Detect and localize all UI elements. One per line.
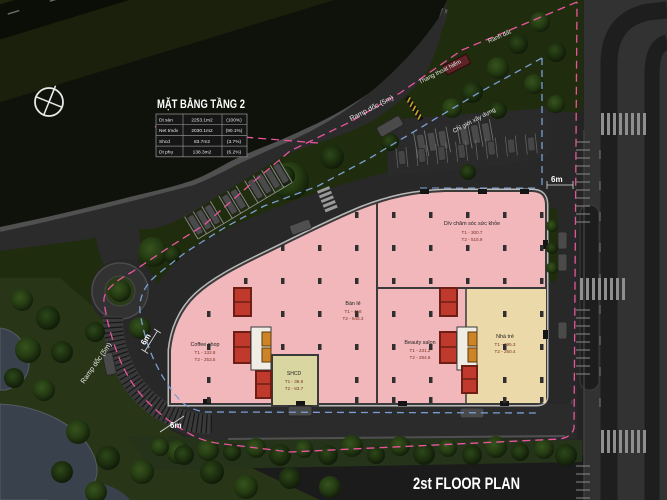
svg-text:2253.1m2: 2253.1m2: [191, 118, 213, 124]
svg-text:6m: 6m: [551, 175, 563, 184]
svg-text:T2 - 284.8: T2 - 284.8: [410, 355, 431, 360]
svg-text:Bán lẻ: Bán lẻ: [345, 301, 360, 307]
svg-text:Net tmdv: Net tmdv: [159, 128, 179, 134]
svg-text:(90.1%): (90.1%): [226, 128, 243, 134]
svg-text:T2 - 645.3: T2 - 645.3: [343, 316, 364, 321]
svg-text:2st FLOOR PLAN: 2st FLOOR PLAN: [413, 475, 520, 493]
svg-text:Nhà trẻ: Nhà trẻ: [496, 334, 514, 340]
svg-text:T1 - 195.3: T1 - 195.3: [495, 342, 516, 347]
svg-text:T2 - 83.7: T2 - 83.7: [285, 386, 304, 391]
svg-text:SHCD: SHCD: [287, 371, 302, 377]
svg-text:T1 - 418: T1 - 418: [344, 309, 362, 314]
svg-text:T1 - 36.9: T1 - 36.9: [285, 379, 304, 384]
svg-text:(100%): (100%): [226, 118, 242, 124]
svg-text:(6.2%): (6.2%): [227, 150, 242, 156]
svg-text:Dt phụ: Dt phụ: [159, 150, 173, 156]
svg-text:Dt sàn: Dt sàn: [159, 118, 173, 124]
svg-text:6m: 6m: [170, 421, 182, 430]
svg-text:T1 - 231.2: T1 - 231.2: [410, 348, 431, 353]
svg-text:Coffee shop: Coffee shop: [191, 342, 220, 348]
svg-text:T2 - 515.9: T2 - 515.9: [462, 237, 483, 242]
svg-text:Shcd: Shcd: [159, 139, 170, 145]
svg-text:2030.1m2: 2030.1m2: [191, 128, 213, 134]
svg-text:(3.7%): (3.7%): [227, 139, 242, 145]
svg-text:T2 - 260.4: T2 - 260.4: [495, 349, 516, 354]
svg-text:138.3m2: 138.3m2: [193, 150, 212, 156]
svg-text:MẶT BẰNG TẦNG 2: MẶT BẰNG TẦNG 2: [157, 96, 245, 111]
svg-text:D/v chăm sóc sức khỏe: D/v chăm sóc sức khỏe: [444, 220, 500, 227]
svg-text:T1 - 132.8: T1 - 132.8: [195, 350, 216, 355]
svg-text:Beauty salon: Beauty salon: [404, 340, 435, 346]
svg-text:T1 - 300.7: T1 - 300.7: [462, 230, 483, 235]
svg-text:T2 - 253.5: T2 - 253.5: [195, 357, 216, 362]
svg-text:83.7m2: 83.7m2: [194, 139, 210, 145]
